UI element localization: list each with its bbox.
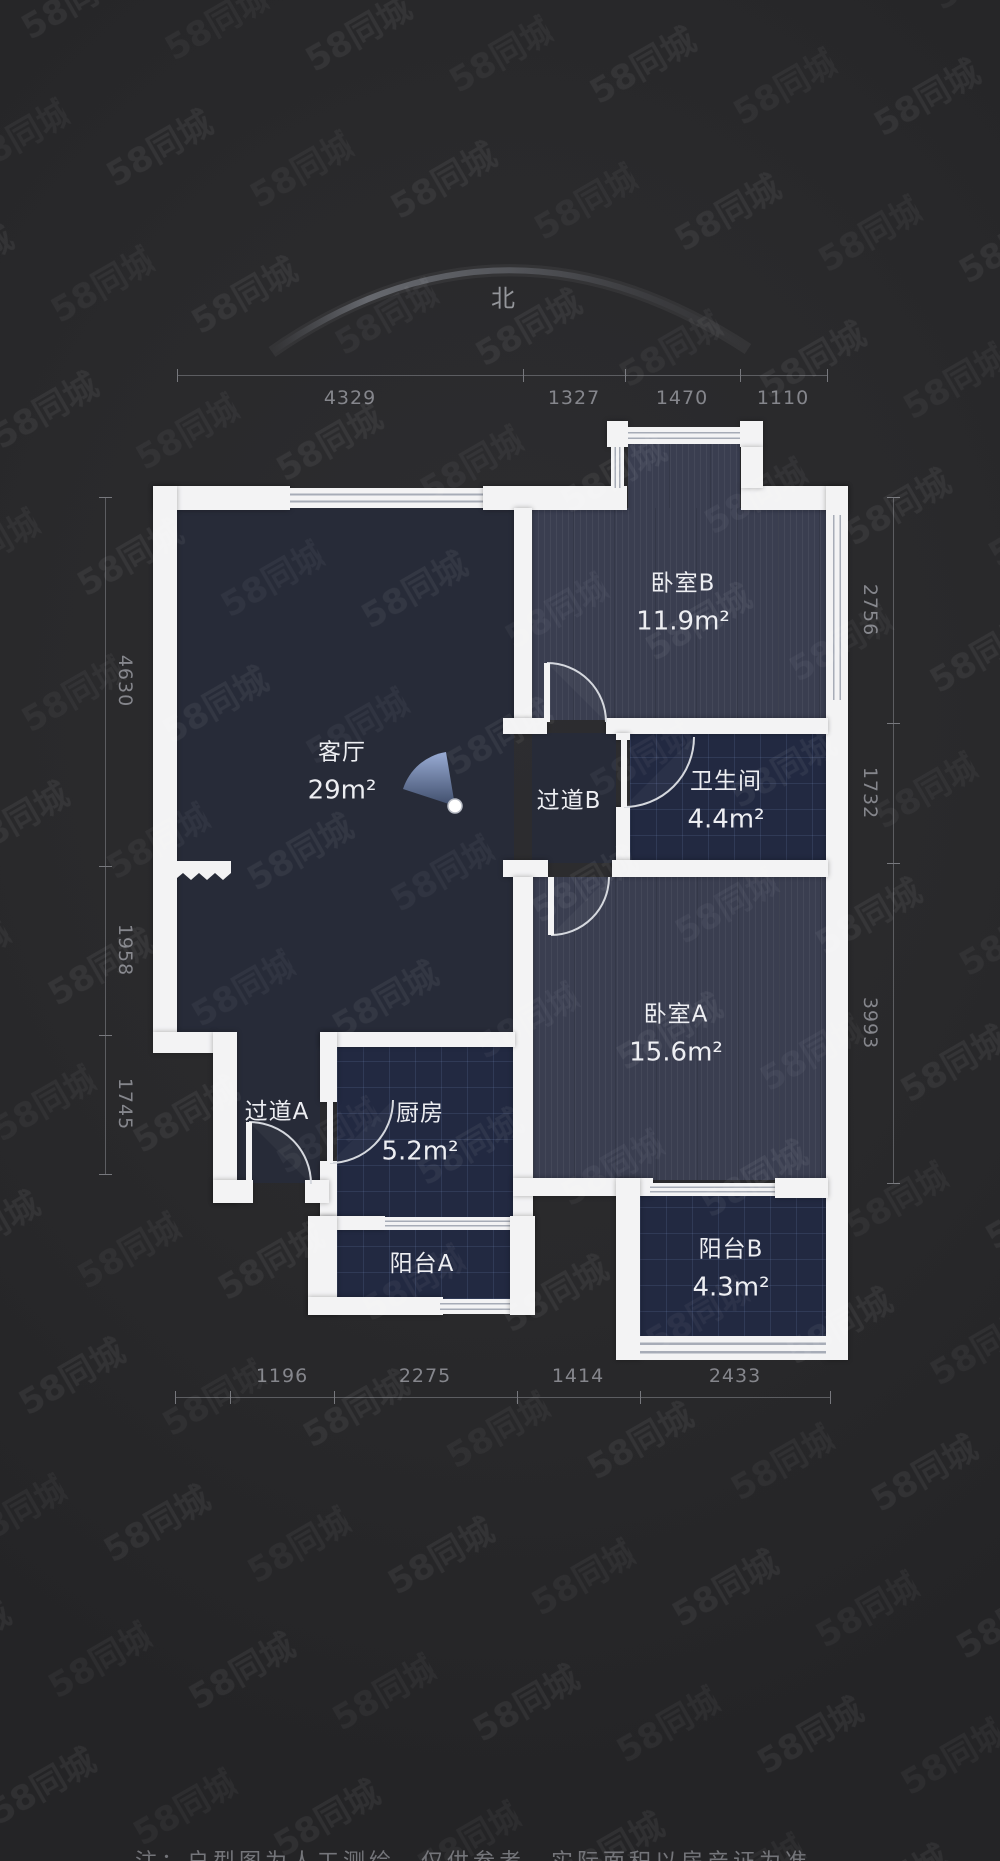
wall-hallwayA-left — [213, 1032, 237, 1203]
kitchen-window — [385, 1217, 512, 1230]
bay-side-wall — [741, 447, 763, 488]
living-room-window — [290, 488, 483, 508]
balcony-a-name: 阳台A — [390, 1244, 455, 1278]
dim-line-right — [893, 497, 894, 1183]
wall-bedroomB-bottom-left — [503, 718, 547, 734]
dim-tick — [625, 369, 626, 382]
room-label-hallway-b: 过道B — [537, 781, 602, 815]
bay-window — [628, 427, 740, 444]
wall-bathroom-left-bottom — [616, 807, 630, 863]
room-label-living: 客厅 29m² — [308, 733, 377, 806]
hallway-b-name: 过道B — [537, 781, 602, 815]
dim-tick — [175, 1391, 176, 1404]
bathroom-area: 4.4m² — [687, 805, 764, 835]
dim-tick — [887, 497, 900, 498]
dim-tick — [517, 1391, 518, 1404]
dim-left-1: 4630 — [114, 655, 136, 707]
dim-top-4: 1110 — [757, 387, 809, 409]
wall-balconyA-right — [510, 1216, 535, 1315]
disclaimer-text: 注：户型图为人工测绘，仅供参考，实际面积以房产证为准 — [135, 1844, 811, 1861]
wall-hallwayA-bottom-left — [213, 1180, 253, 1203]
dim-tick — [827, 369, 828, 382]
dim-tick — [523, 369, 524, 382]
room-label-bathroom: 卫生间 4.4m² — [687, 762, 764, 835]
dim-tick — [99, 1035, 112, 1036]
wall-step-ledge — [153, 1032, 215, 1053]
wall-hallwayA-bottom-right — [305, 1180, 329, 1203]
dim-tick — [99, 1174, 112, 1175]
wall-balconyB-left — [616, 1178, 640, 1360]
dim-tick — [887, 723, 900, 724]
bathroom-name: 卫生间 — [687, 762, 764, 796]
dim-top-3: 1470 — [656, 387, 708, 409]
balcony-b-area: 4.3m² — [692, 1273, 769, 1303]
dim-tick — [740, 369, 741, 382]
wall-living-bedroomB — [514, 508, 532, 722]
wall-bedroomA-top-left — [503, 860, 548, 877]
wall-balconyA-bottom — [308, 1297, 443, 1315]
balconyA-window — [440, 1299, 512, 1314]
wall-kitchen-left-top — [320, 1032, 337, 1102]
kitchen-area: 5.2m² — [381, 1137, 458, 1167]
dim-bottom-1: 1196 — [256, 1365, 308, 1387]
dim-tick — [177, 369, 178, 382]
dim-tick — [830, 1391, 831, 1404]
dim-tick — [99, 866, 112, 867]
floorplan-screenshot: 4329 1327 1470 1110 1196 2275 1414 2433 … — [0, 0, 1000, 1861]
dim-line-bottom — [175, 1397, 830, 1398]
wall-left-outer — [153, 486, 177, 1032]
bay-pillar-right — [740, 421, 763, 447]
bedroom-b-bay-floor — [628, 444, 740, 508]
wall-kitchen-right — [513, 877, 533, 1228]
bedroom-a-name: 卧室A — [629, 995, 723, 1029]
balcony-b-name: 阳台B — [692, 1230, 769, 1264]
wall-top-mid — [483, 486, 627, 510]
dim-left-3: 1745 — [114, 1078, 136, 1130]
dim-bottom-2: 2275 — [399, 1365, 451, 1387]
dim-top-2: 1327 — [548, 387, 600, 409]
room-label-balcony-a: 阳台A — [390, 1244, 455, 1278]
dim-tick — [887, 1183, 900, 1184]
living-name: 客厅 — [308, 733, 377, 767]
dim-left-2: 1958 — [114, 924, 136, 976]
dim-right-1: 2756 — [859, 584, 881, 636]
dim-line-left — [105, 497, 106, 1174]
dim-bottom-4: 2433 — [709, 1365, 761, 1387]
dim-line-top — [177, 375, 827, 376]
room-label-bedroom-a: 卧室A 15.6m² — [629, 995, 723, 1068]
dim-tick — [99, 497, 112, 498]
dim-right-2: 1732 — [859, 767, 881, 819]
room-label-kitchen: 厨房 5.2m² — [381, 1094, 458, 1167]
bay-pillar-left — [607, 421, 628, 447]
bedroom-b-side-window — [828, 515, 846, 700]
dim-tick — [334, 1391, 335, 1404]
room-label-hallway-a: 过道A — [245, 1092, 310, 1126]
wall-bathroom-left-top — [616, 733, 630, 740]
living-area: 29m² — [308, 776, 377, 806]
dim-tick — [230, 1391, 231, 1404]
bay-side-window — [611, 447, 624, 488]
bedroom-b-area: 11.9m² — [636, 607, 730, 637]
bedroom-b-name: 卧室B — [636, 564, 730, 598]
bedroom-a-area: 15.6m² — [629, 1038, 723, 1068]
wall-balconyB-top-right — [775, 1178, 828, 1198]
dim-tick — [640, 1391, 641, 1404]
north-label: 北 — [491, 279, 515, 314]
room-label-bedroom-b: 卧室B 11.9m² — [636, 564, 730, 637]
dim-top-1: 4329 — [324, 387, 376, 409]
wall-kitchen-top — [320, 1032, 515, 1047]
kitchen-name: 厨房 — [381, 1094, 458, 1128]
balconyB-sliding-door — [650, 1183, 778, 1196]
wall-bedroomA-top-right — [612, 860, 828, 877]
dim-bottom-3: 1414 — [552, 1365, 604, 1387]
room-label-balcony-b: 阳台B 4.3m² — [692, 1230, 769, 1303]
hallway-a-name: 过道A — [245, 1092, 310, 1126]
dim-right-3: 3993 — [859, 997, 881, 1049]
balconyB-window — [640, 1336, 826, 1360]
dim-tick — [887, 863, 900, 864]
wall-bedroomB-bottom-right — [606, 718, 828, 734]
